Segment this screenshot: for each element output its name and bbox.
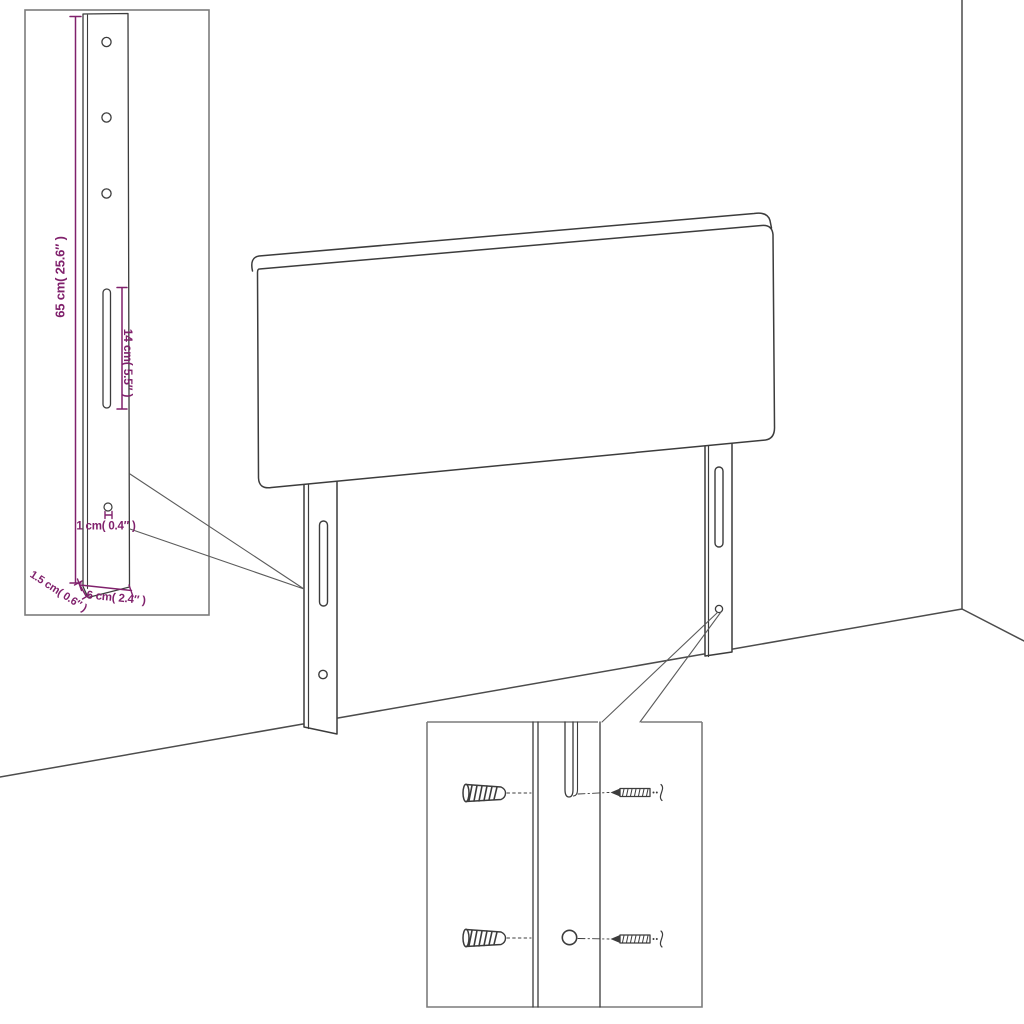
bracket-hole-3 <box>102 189 111 198</box>
right-leg-hole <box>715 605 722 612</box>
headboard-panel <box>252 213 775 488</box>
bracket-hole-2 <box>102 113 111 122</box>
bracket-hole-1 <box>102 37 111 46</box>
right-leg <box>705 435 732 657</box>
headboard-front-face <box>258 225 775 487</box>
diagram-canvas: 65 cm( 25.6″ ) 14 cm( 5.5″ ) 1 cm( 0.4″ … <box>0 0 1024 1024</box>
hardware-callout-lines <box>602 612 721 722</box>
left-leg <box>304 470 337 734</box>
strip-hole <box>562 930 576 944</box>
left-leg-hole <box>319 670 327 678</box>
floor-line-right <box>962 609 1024 641</box>
hardware-detail-inset <box>427 612 721 1007</box>
bracket-small-hole <box>104 503 112 511</box>
line-art <box>0 0 1024 1024</box>
